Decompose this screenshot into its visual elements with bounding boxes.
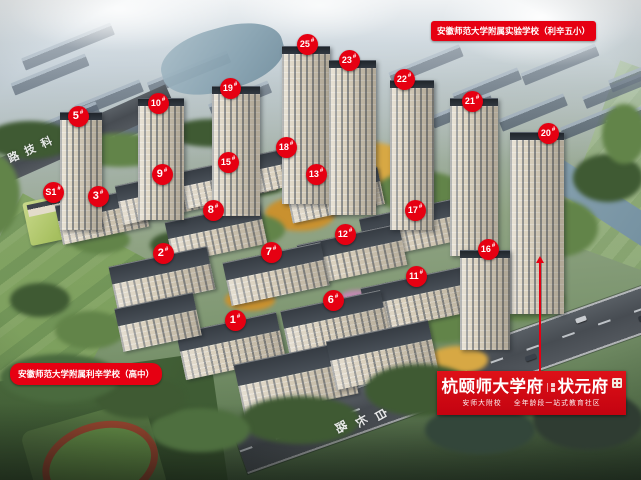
building-marker-13: 13# [306, 164, 327, 185]
building-marker-S1: S1# [43, 182, 64, 203]
school-banner-primary-school: 安徽师范大学附属实验学校（利辛五小） [431, 21, 596, 41]
distant-building [498, 93, 568, 131]
highrise-tower [212, 86, 260, 216]
building-marker-5: 5# [68, 106, 89, 127]
building-marker-11: 11# [406, 266, 427, 287]
tree-canopy [10, 283, 70, 317]
highrise-tower [450, 98, 498, 256]
building-marker-23: 23# [339, 50, 360, 71]
building-marker-19: 19# [220, 78, 241, 99]
project-subtitle-right: 全年龄段一站式教育社区 [514, 400, 601, 407]
building-marker-18: 18# [276, 137, 297, 158]
building-marker-2: 2# [153, 243, 174, 264]
highrise-tower [329, 60, 376, 215]
building-marker-17: 17# [405, 200, 426, 221]
building-marker-7: 7# [261, 242, 282, 263]
tree-canopy [602, 104, 641, 164]
highrise-tower [60, 112, 102, 230]
project-title-right: 状元府 [558, 379, 609, 396]
building-marker-3: 3# [88, 186, 109, 207]
building-marker-22: 22# [394, 69, 415, 90]
phase-tag-icon [547, 383, 555, 392]
school-banner-high-school: 安徽师范大学附属利辛学校（高中） [10, 363, 162, 385]
building-marker-8: 8# [203, 200, 224, 221]
building-marker-10: 10# [148, 93, 169, 114]
highrise-tower [138, 98, 184, 220]
tree-canopy [55, 311, 125, 349]
building-marker-20: 20# [538, 123, 559, 144]
leader-line [539, 262, 541, 372]
highrise-tower [460, 250, 510, 350]
car [575, 315, 587, 323]
distant-building [520, 43, 599, 85]
building-marker-1: 1# [225, 310, 246, 331]
car [525, 353, 537, 361]
building-marker-12: 12# [335, 224, 356, 245]
project-title-left: 杭颐师大学府 [442, 379, 544, 396]
project-logo-banner: 杭颐师大学府 状元府 安师大附校全年龄段一站式教育社区 [437, 371, 626, 415]
project-title: 杭颐师大学府 状元府 [442, 379, 622, 396]
building-marker-25: 25# [297, 34, 318, 55]
seal-icon [612, 378, 622, 388]
building-marker-16: 16# [478, 239, 499, 260]
building-marker-21: 21# [462, 91, 483, 112]
project-subtitle: 安师大附校全年龄段一站式教育社区 [462, 397, 600, 407]
building-marker-6: 6# [323, 290, 344, 311]
aerial-site-rendering: 路技科 路长白 S1#1#2#3#5#6#7#8#9#10#11#12#13#1… [0, 0, 641, 480]
highrise-tower [510, 132, 564, 314]
building-marker-9: 9# [152, 164, 173, 185]
project-subtitle-left: 安师大附校 [462, 400, 501, 407]
building-marker-15: 15# [218, 152, 239, 173]
